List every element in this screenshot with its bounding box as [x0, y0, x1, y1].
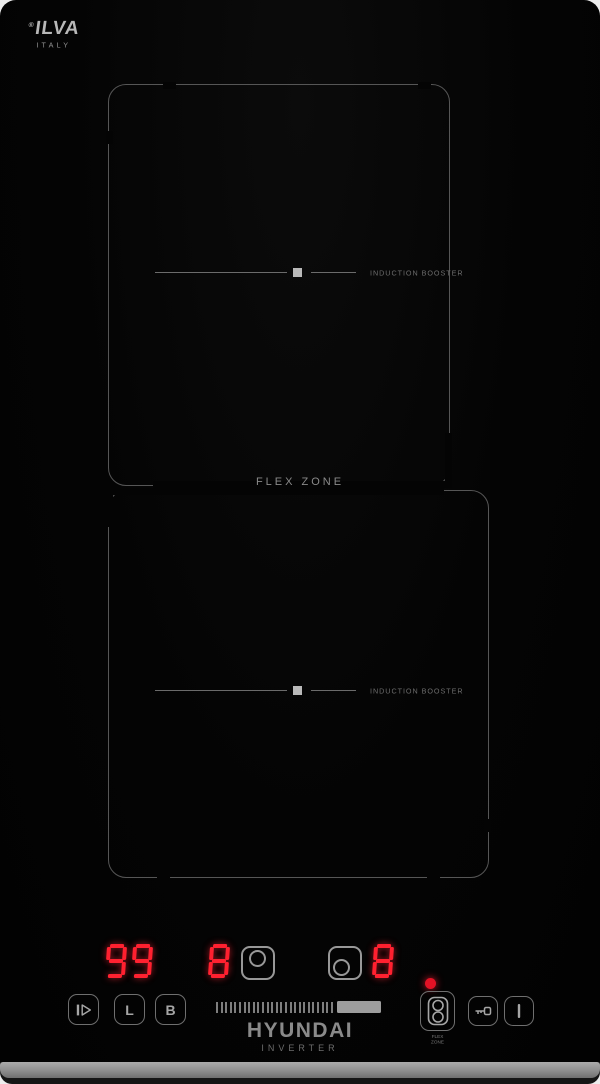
- product-photo: ®ILVA ITALY INDUCTION BOOSTER: [0, 0, 600, 1084]
- front-zone-level-display: [370, 944, 396, 978]
- slider-tick: [290, 1002, 292, 1013]
- slider-tick: [299, 1002, 301, 1013]
- pause-play-icon: [75, 1003, 93, 1017]
- slider-tick: [317, 1002, 319, 1013]
- cooktop-glass-surface: ®ILVA ITALY INDUCTION BOOSTER: [0, 0, 600, 1062]
- zone-outline-gap: [106, 488, 444, 495]
- induction-booster-label: INDUCTION BOOSTER: [370, 269, 464, 277]
- power-level-slider[interactable]: [216, 1000, 388, 1014]
- zone-center-square: [293, 268, 302, 277]
- induction-booster-label: INDUCTION BOOSTER: [370, 687, 464, 695]
- slider-tick: [308, 1002, 310, 1013]
- marker-line: [155, 690, 287, 692]
- slider-knob[interactable]: [337, 1001, 381, 1013]
- marker-line: [155, 272, 287, 274]
- marker-line: [311, 272, 356, 274]
- brand-tagline: INVERTER: [0, 1043, 600, 1053]
- cooking-zone-rear-outline: [108, 84, 450, 486]
- zone-center-marker-rear: INDUCTION BOOSTER: [155, 268, 487, 277]
- zone-outline-gap: [163, 82, 176, 89]
- seven-segment-digit: [131, 944, 153, 978]
- brand-name: HYUNDAI: [0, 1019, 600, 1043]
- key-icon: [474, 1004, 492, 1018]
- slider-tick: [271, 1002, 273, 1013]
- slider-tick: [244, 1002, 246, 1013]
- slider-tick: [331, 1002, 333, 1013]
- pot-circle: [249, 950, 266, 967]
- slider-tick: [257, 1002, 259, 1013]
- slider-tick: [262, 1002, 264, 1013]
- marker-line: [311, 690, 356, 692]
- zone-outline-gap: [427, 873, 440, 880]
- zone-outline-gap: [484, 819, 491, 832]
- zone-outline-gap: [106, 131, 113, 144]
- slider-tick: [280, 1002, 282, 1013]
- slider-tick: [216, 1002, 218, 1013]
- slider-tick: [239, 1002, 241, 1013]
- logo-name: ILVA: [34, 18, 81, 39]
- seven-segment-digit: [372, 944, 394, 978]
- slider-tick: [322, 1002, 324, 1013]
- seven-segment-digit: [105, 944, 127, 978]
- zone-outline-gap: [157, 873, 170, 880]
- cooking-zone-front-outline: [108, 490, 489, 878]
- slider-tick: [312, 1002, 314, 1013]
- pot-detection-icon-rear: [241, 946, 275, 980]
- flex-indicator-led: [425, 978, 436, 989]
- slider-tick-marks: [216, 1002, 335, 1013]
- slider-tick: [285, 1002, 287, 1013]
- slider-tick: [267, 1002, 269, 1013]
- slider-tick: [303, 1002, 305, 1013]
- flex-zone-label: FLEX ZONE: [0, 476, 600, 488]
- slider-tick: [221, 1002, 223, 1013]
- slider-tick: [225, 1002, 227, 1013]
- pot-detection-icon-front: [328, 946, 362, 980]
- pot-circle: [333, 959, 350, 976]
- slider-tick: [248, 1002, 250, 1013]
- brand-logo: ®ILVA ITALY: [28, 18, 80, 51]
- slider-tick: [294, 1002, 296, 1013]
- front-metal-edge: [0, 1062, 600, 1078]
- logo-country: ITALY: [33, 41, 74, 49]
- zone-outline-gap: [106, 491, 113, 527]
- slider-tick: [253, 1002, 255, 1013]
- slider-tick: [326, 1002, 328, 1013]
- slider-tick: [276, 1002, 278, 1013]
- power-icon: [515, 1003, 523, 1019]
- zone-center-square: [293, 686, 302, 695]
- zone-center-marker-front: INDUCTION BOOSTER: [155, 686, 487, 695]
- logo-wordmark: ®ILVA: [26, 18, 81, 40]
- slider-tick: [234, 1002, 236, 1013]
- seven-segment-digit: [208, 944, 230, 978]
- rear-zone-level-display: [206, 944, 232, 978]
- timer-display: [103, 944, 155, 978]
- zone-outline-gap: [418, 82, 431, 89]
- slider-tick: [230, 1002, 232, 1013]
